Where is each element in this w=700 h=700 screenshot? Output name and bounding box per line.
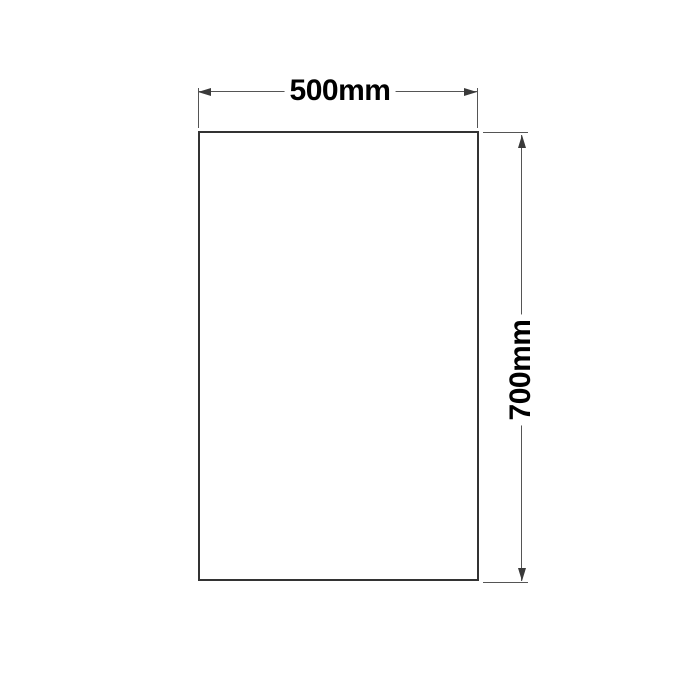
- extension-line-bottom: [483, 582, 528, 583]
- arrow-left-icon: [198, 88, 211, 96]
- dimension-diagram: 500mm 700mm: [0, 0, 700, 700]
- height-dimension-label: 700mm: [505, 315, 537, 426]
- width-dimension-label: 500mm: [285, 75, 396, 107]
- rectangle-outline: [198, 131, 479, 581]
- extension-line-top: [483, 132, 528, 133]
- extension-line-right: [477, 88, 478, 128]
- arrow-right-icon: [464, 88, 477, 96]
- arrow-down-icon: [518, 568, 526, 581]
- arrow-up-icon: [518, 135, 526, 148]
